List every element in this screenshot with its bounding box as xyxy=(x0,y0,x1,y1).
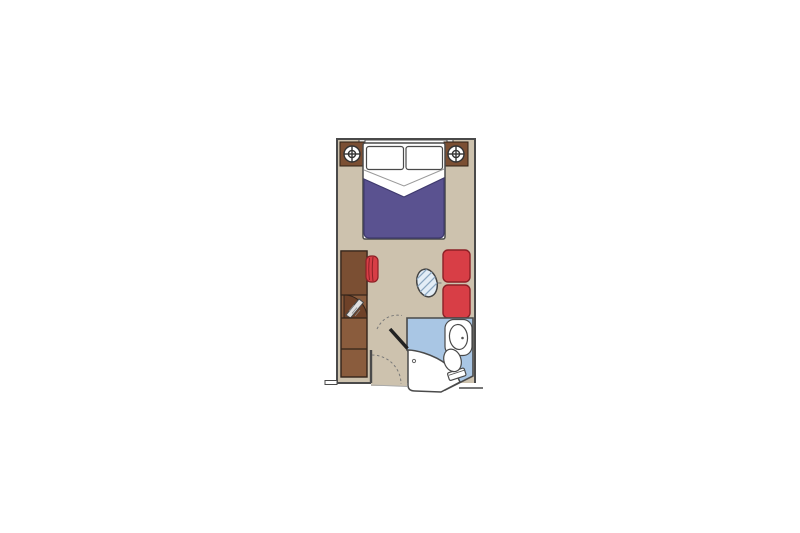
sofa-cushion-top xyxy=(443,250,470,282)
sofa-cushion-bottom xyxy=(443,285,470,318)
shower-knob xyxy=(412,359,415,362)
lamp-icon-left xyxy=(344,146,360,162)
corridor-wall-stub-left xyxy=(325,381,337,385)
desk-wardrobe-unit xyxy=(341,251,367,377)
pillow-left xyxy=(367,147,404,170)
desk-top xyxy=(341,251,367,295)
lamp-icon-right xyxy=(448,146,464,162)
cabin-floor-plan xyxy=(325,139,483,392)
nightstand-left xyxy=(340,142,364,166)
page-background xyxy=(0,0,800,533)
stool xyxy=(366,256,378,282)
sink-drain xyxy=(461,337,464,340)
nightstand-right xyxy=(444,142,468,166)
double-bed xyxy=(363,143,445,239)
floor-plan-drawing xyxy=(0,0,800,533)
pillow-right xyxy=(406,147,443,170)
